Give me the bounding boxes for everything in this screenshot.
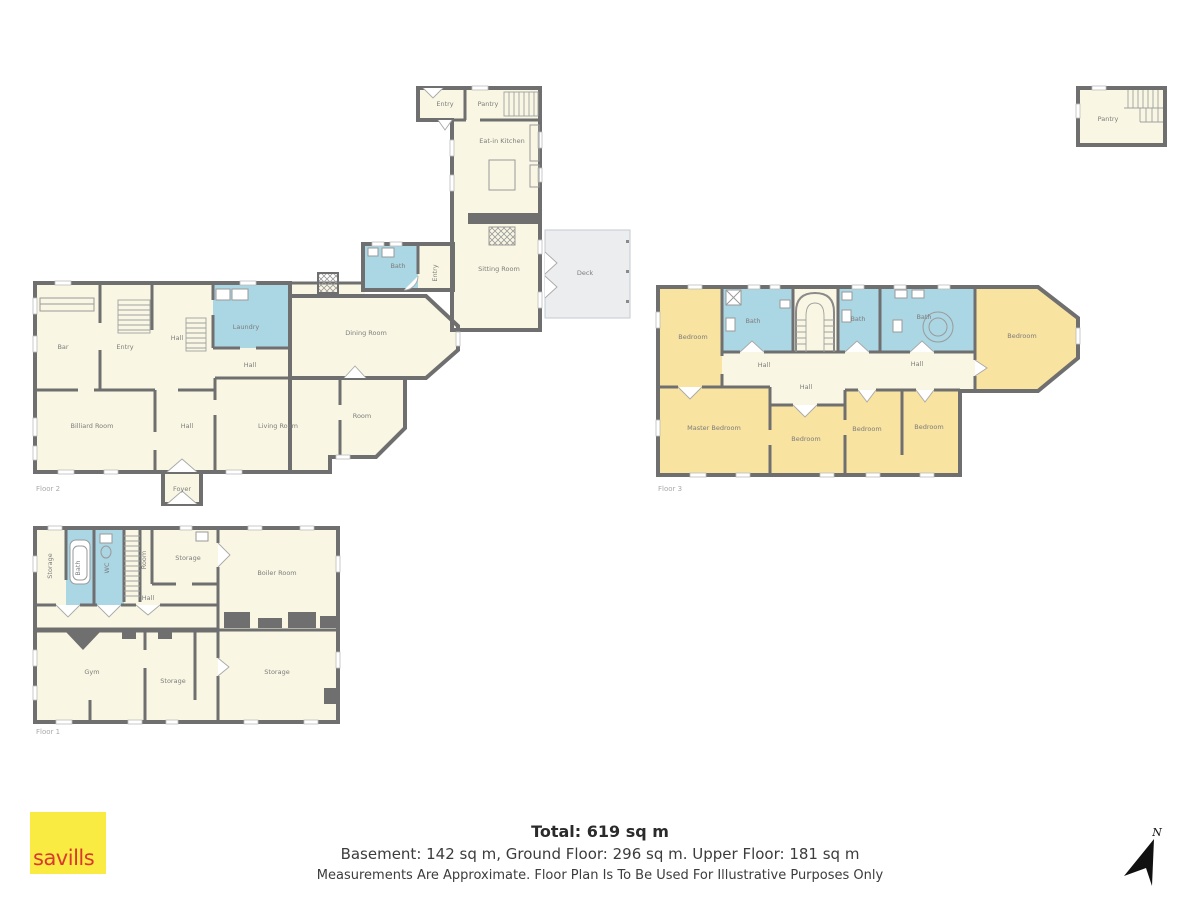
floor-plan-canvas: Entry Pantry Eat-in Kitchen Sitting Room…: [0, 0, 1200, 900]
chimney-hatch: [318, 273, 338, 293]
room-label-bedroom-center: Bedroom: [791, 435, 820, 443]
room-label-room: Room: [353, 412, 372, 420]
room-label-sitting-room: Sitting Room: [478, 265, 520, 273]
savills-logo: savills: [30, 812, 106, 874]
basement-plan: Storage Bath WC Room Storage Boiler Room…: [33, 526, 340, 736]
room-label-hall-lower: Hall: [181, 422, 194, 430]
room-label-entry-side: Entry: [431, 264, 439, 281]
room-label-wc: WC: [103, 562, 111, 573]
room-label-storage-top: Storage: [175, 554, 200, 562]
room-label-foyer: Foyer: [173, 485, 191, 493]
room-label-bedroom-right: Bedroom: [1007, 332, 1036, 340]
room-label-dining-room: Dining Room: [345, 329, 387, 337]
room-label-bedroom-fourth: Bedroom: [914, 423, 943, 431]
floor-areas-text: Basement: 142 sq m, Ground Floor: 296 sq…: [0, 845, 1200, 863]
room-label-hall-upper: Hall: [171, 334, 184, 342]
room-label-deck: Deck: [577, 269, 594, 277]
room-label-outbuilding-pantry: Pantry: [1098, 115, 1119, 123]
room-label-storage-right: Storage: [264, 668, 289, 676]
room-label-bath-middle: Bath: [850, 315, 865, 323]
room-label-storage-mid: Storage: [160, 677, 185, 685]
room-label-bath-annex: Bath: [390, 262, 405, 270]
room-label-basement-hall: Hall: [142, 594, 155, 602]
kitchen-island-hatch: [489, 227, 515, 245]
room-label-bath-large: Bath: [916, 313, 931, 321]
room-label-eat-in-kitchen: Eat-in Kitchen: [479, 137, 524, 145]
total-area-text: Total: 619 sq m: [0, 822, 1200, 841]
ground-floor-label: Floor 2: [36, 485, 60, 493]
pantry-outbuilding-plan: Pantry: [1076, 86, 1165, 145]
summary-block: Total: 619 sq m Basement: 142 sq m, Grou…: [0, 822, 1200, 883]
room-label-basement-bath: Bath: [74, 560, 82, 575]
upper-floor-plan: Bedroom Bath Bath Bath Bedroom Hall Hall…: [656, 285, 1080, 493]
room-label-boiler-room: Boiler Room: [257, 569, 296, 577]
ground-floor-room-fills: [35, 88, 540, 504]
savills-logo-text: savills: [33, 846, 94, 870]
room-label-hall-left: Hall: [758, 361, 771, 369]
room-label-bedroom-left: Bedroom: [678, 333, 707, 341]
room-label-gym: Gym: [84, 668, 99, 676]
room-label-bar: Bar: [57, 343, 68, 351]
room-label-basement-room: Room: [140, 551, 148, 570]
disclaimer-text: Measurements Are Approximate. Floor Plan…: [0, 868, 1200, 883]
basement-floor-label: Floor 1: [36, 728, 60, 736]
floor-plan-page: Entry Pantry Eat-in Kitchen Sitting Room…: [0, 0, 1200, 900]
upper-floor-label: Floor 3: [658, 485, 682, 493]
room-label-billiard-room: Billiard Room: [71, 422, 114, 430]
room-label-bedroom-third: Bedroom: [852, 425, 881, 433]
room-label-living-room: Living Room: [258, 422, 298, 430]
ground-floor-plan: Entry Pantry Eat-in Kitchen Sitting Room…: [33, 86, 630, 504]
room-label-master-bedroom: Master Bedroom: [687, 424, 741, 432]
room-label-entry-top: Entry: [436, 100, 453, 108]
room-label-hall-mid: Hall: [244, 361, 257, 369]
room-label-hall-right: Hall: [911, 360, 924, 368]
kitchen-wall-block: [468, 213, 542, 224]
room-label-hall-center: Hall: [800, 383, 813, 391]
room-label-bath-left: Bath: [745, 317, 760, 325]
room-label-pantry: Pantry: [478, 100, 499, 108]
room-label-entry: Entry: [116, 343, 133, 351]
room-label-laundry: Laundry: [233, 323, 260, 331]
room-label-storage-left: Storage: [46, 553, 54, 578]
